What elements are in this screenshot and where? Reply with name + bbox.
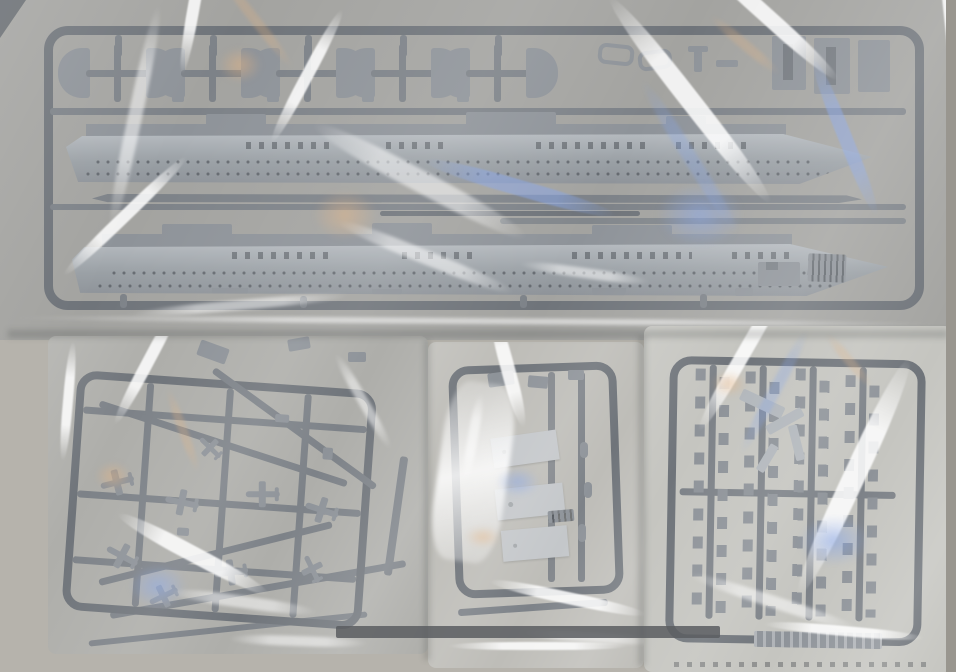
link-fitting (597, 42, 635, 67)
small-fitting (528, 375, 549, 389)
small-fitting (716, 60, 738, 67)
window-band (676, 142, 746, 149)
fittings-sprue (665, 356, 926, 646)
block-slot (826, 47, 836, 85)
fittings-bag (644, 326, 952, 672)
cylinder-fitting (578, 524, 586, 542)
bag-gap-shadow (424, 340, 430, 660)
hull-body (66, 134, 872, 184)
small-fitting (196, 339, 230, 364)
runner-bar (578, 372, 585, 582)
waterline-plate (92, 194, 862, 203)
gun-sponson-pair (438, 44, 558, 106)
slotted-block (772, 36, 806, 90)
runner-bar (458, 599, 608, 616)
porthole-row (112, 271, 812, 275)
runner-bar (700, 294, 707, 308)
small-fitting (688, 46, 708, 52)
window-band (232, 252, 332, 259)
aircraft-sprue (60, 370, 397, 652)
window-band (732, 252, 792, 259)
block-notch (766, 262, 778, 270)
photo-model-kit-contents (0, 0, 956, 672)
small-fitting (275, 414, 290, 423)
runner-bar (300, 296, 307, 308)
slotted-block (858, 40, 890, 92)
cross-runner (494, 44, 501, 102)
window-band (402, 252, 472, 259)
small-fitting (735, 288, 753, 296)
small-fitting (172, 86, 184, 102)
runner-bar (50, 204, 906, 210)
window-band (572, 252, 692, 259)
small-fitting (267, 86, 279, 102)
sprue-label-tab (754, 631, 882, 649)
aircraft-bag (48, 336, 428, 654)
mast-rod-part (380, 211, 640, 216)
small-fitting (348, 352, 366, 362)
window-band (536, 142, 646, 149)
aircraft-part (246, 481, 282, 507)
porthole-row (96, 160, 816, 164)
deck-panel (501, 525, 569, 562)
hull-half-upper (66, 112, 872, 184)
slotted-block (814, 38, 850, 94)
small-fitting (362, 86, 374, 102)
cylinder-fitting (584, 482, 592, 498)
small-fitting (568, 370, 584, 380)
top-bag (0, 0, 956, 340)
bag-edge-fold (448, 642, 628, 650)
small-fitting (287, 336, 311, 352)
ribbed-mini-block (548, 509, 575, 523)
cross-runner (114, 44, 121, 102)
runner-bar (120, 294, 127, 308)
sponson-part (526, 48, 558, 98)
step-block (758, 262, 800, 286)
cross-runner (209, 44, 216, 102)
window-band (246, 142, 336, 149)
runner-bar (520, 295, 527, 308)
aircraft-part (213, 557, 252, 588)
surface-right-edge (946, 0, 956, 672)
cross-runner (304, 44, 311, 102)
small-fitting (177, 527, 190, 536)
small-fitting (457, 86, 469, 102)
surface-dark-band (336, 626, 720, 638)
panel-hole (513, 544, 517, 548)
panel-hole (508, 502, 513, 507)
cylinder-fitting (580, 442, 588, 458)
bag-serrated-edge (674, 662, 934, 667)
cross-runner (399, 44, 406, 102)
porthole-row (86, 172, 846, 176)
block-slot (783, 44, 793, 80)
small-fitting (322, 447, 333, 460)
bag-gap-shadow (8, 330, 948, 338)
porthole-row (98, 284, 838, 288)
window-band (386, 142, 446, 149)
grille-block (808, 253, 847, 282)
bag-gap-shadow (638, 336, 646, 666)
panel-bag (428, 342, 644, 668)
